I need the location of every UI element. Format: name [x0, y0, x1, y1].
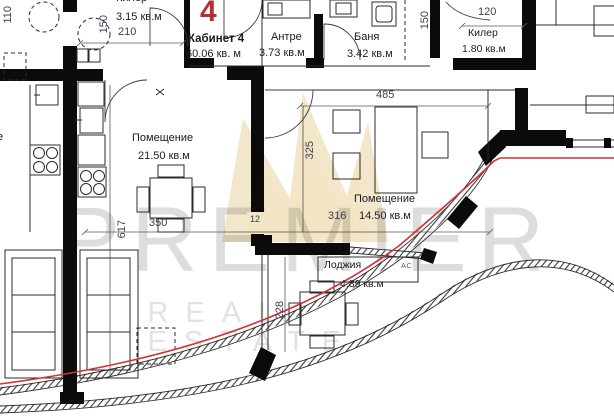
room-area-second: 14.50 кв.м	[359, 210, 411, 222]
room-label-banya: Баня	[354, 31, 379, 43]
dim-150-left: 150	[99, 15, 110, 33]
room-label-kiler-top: Килер	[116, 0, 147, 4]
dim-150-right: 150	[420, 11, 431, 29]
dim-110: 110	[3, 6, 14, 24]
room-area-kiler-right: 1.80 кв.м	[462, 44, 506, 56]
room-label-second: Помещение	[354, 193, 415, 205]
dim-350: 350	[149, 218, 167, 229]
dim-210: 210	[118, 27, 136, 38]
room-area-loggia: 4.89 кв.м	[340, 279, 384, 291]
neighbor-label-fragment: е	[0, 131, 3, 143]
room-area-main: 21.50 кв.м	[138, 150, 190, 162]
room-area-kabinet: 60.06 кв. м	[186, 48, 241, 60]
dim-485: 485	[376, 90, 394, 101]
room-label-loggia: Лоджия	[324, 260, 361, 272]
red-boundary-line	[0, 158, 614, 384]
room-label-kabinet: Кабинет 4	[188, 33, 244, 46]
room-label-antre: Антре	[271, 31, 302, 43]
unit-number: 4	[200, 0, 217, 29]
ac-unit-label: АС	[401, 262, 412, 270]
dim-12: 12	[250, 215, 260, 224]
room-area-antre: 3.73 кв.м	[259, 47, 305, 59]
room-label-kiler-right: Килер	[468, 28, 498, 40]
neighbor-window	[566, 138, 614, 148]
balcony-rail-outer	[0, 260, 614, 413]
walls	[0, 0, 566, 404]
room-label-main: Помещение	[132, 132, 193, 144]
room-area-kiler-top: 3.15 кв.м	[116, 11, 162, 23]
dim-325: 325	[305, 141, 316, 159]
dim-228: 228	[275, 301, 286, 319]
floor-plan: PREMIER REAL ESTATE	[0, 0, 614, 416]
dim-617: 617	[117, 220, 128, 238]
dim-120: 120	[478, 7, 496, 18]
room-area-banya: 3.42 кв.м	[347, 48, 393, 60]
dim-316: 316	[328, 211, 346, 222]
plan-linework	[0, 0, 614, 416]
